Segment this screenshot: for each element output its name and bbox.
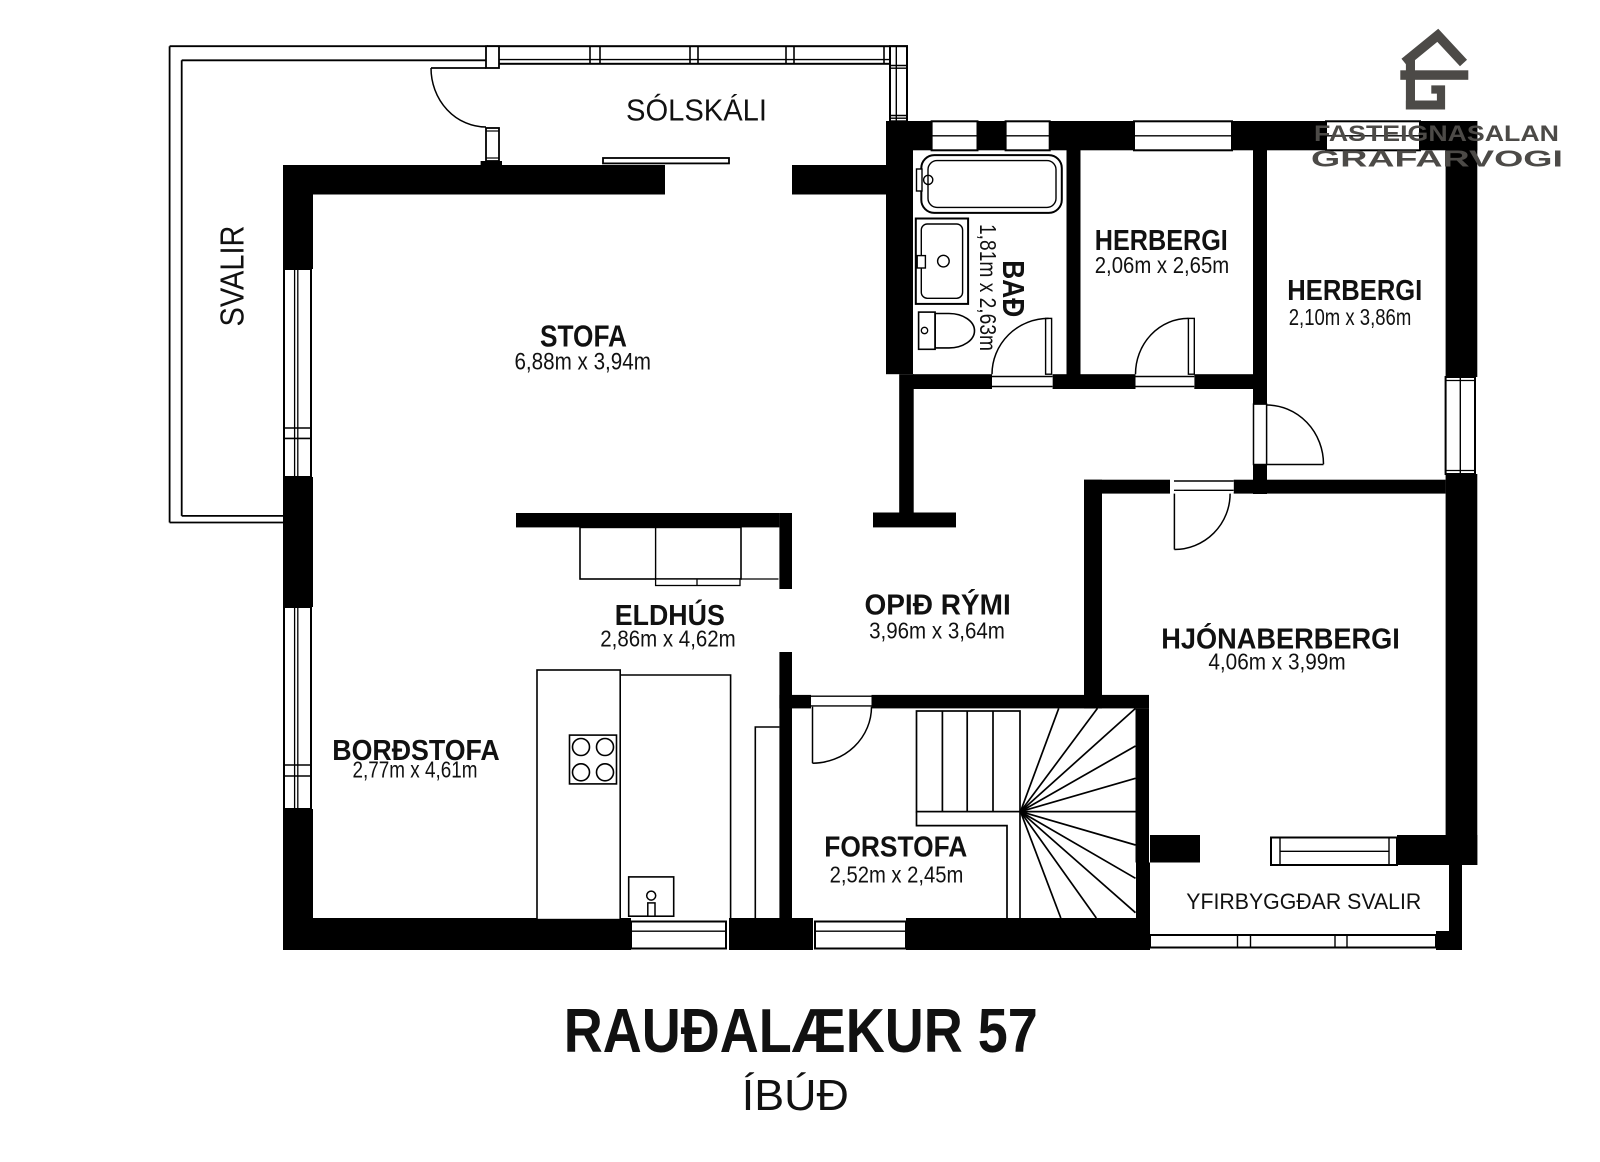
svg-text:FORSTOFA: FORSTOFA [824,831,967,863]
svg-text:3,96m x 3,64m: 3,96m x 3,64m [869,618,1005,644]
svg-text:SVALIR: SVALIR [213,226,250,327]
svg-text:2,77m x 4,61m: 2,77m x 4,61m [353,757,478,783]
svg-text:4,06m x 3,99m: 4,06m x 3,99m [1208,649,1345,675]
svg-text:6,88m x 3,94m: 6,88m x 3,94m [514,349,651,376]
svg-text:2,10m x 3,86m: 2,10m x 3,86m [1289,304,1412,330]
svg-text:2,86m x 4,62m: 2,86m x 4,62m [600,626,736,652]
svg-text:OPIÐ RÝMI: OPIÐ RÝMI [864,588,1010,622]
svg-text:2,06m x 2,65m: 2,06m x 2,65m [1095,252,1230,278]
svg-text:YFIRBYGGÐAR SVALIR: YFIRBYGGÐAR SVALIR [1186,889,1421,914]
svg-text:FASTEIGNASALAN: FASTEIGNASALAN [1314,121,1559,146]
svg-text:1,81m x 2,63m: 1,81m x 2,63m [975,224,1001,351]
svg-text:GRAFARVOGI: GRAFARVOGI [1311,146,1563,172]
svg-text:ÍBÚÐ: ÍBÚÐ [742,1071,849,1120]
svg-text:HERBERGI: HERBERGI [1287,275,1422,307]
svg-text:SÓLSKÁLI: SÓLSKÁLI [626,93,767,128]
svg-text:RAUÐALÆKUR 57: RAUÐALÆKUR 57 [564,997,1038,1066]
svg-text:2,52m x 2,45m: 2,52m x 2,45m [830,862,964,888]
